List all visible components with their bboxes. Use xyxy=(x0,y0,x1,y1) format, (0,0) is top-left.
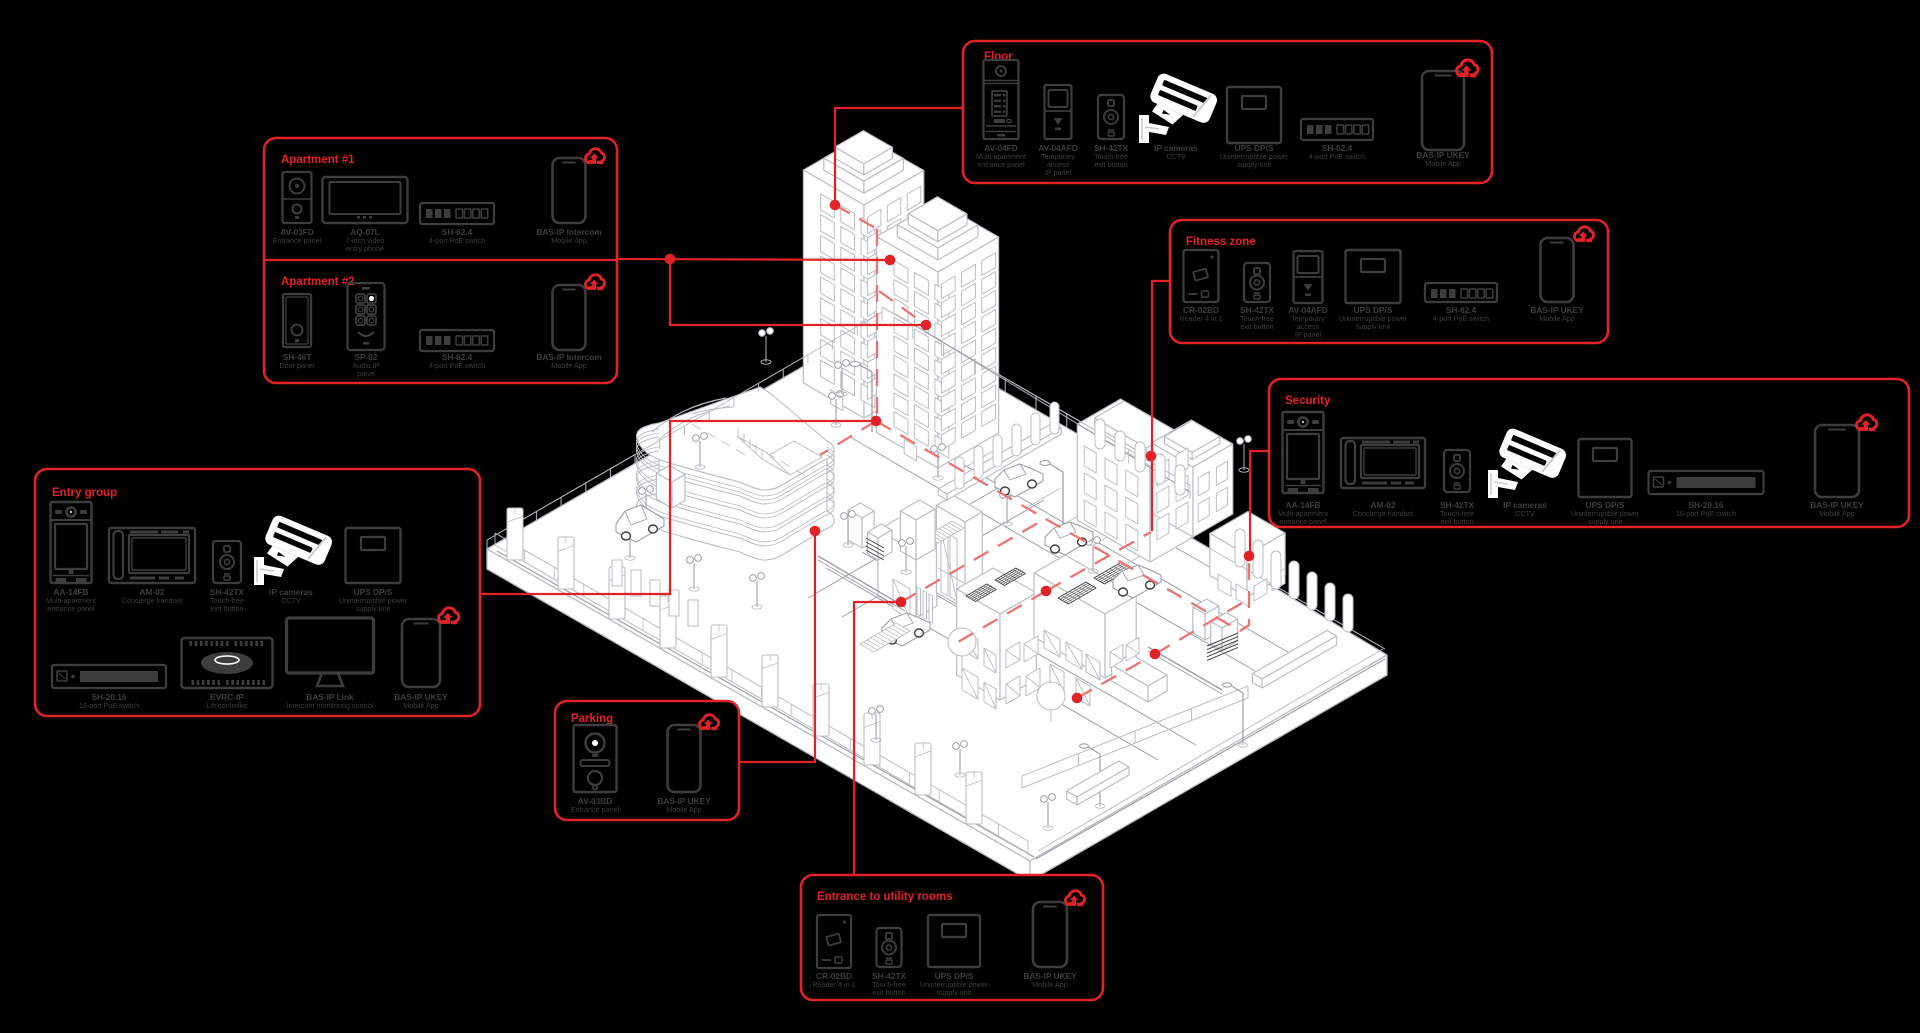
svg-text:Mobile App: Mobile App xyxy=(1032,980,1068,989)
svg-text:Entrance panel: Entrance panel xyxy=(571,805,620,814)
svg-text:entry phone: entry phone xyxy=(346,244,384,253)
svg-text:supply unit: supply unit xyxy=(1588,517,1622,526)
svg-text:Concierge handset: Concierge handset xyxy=(1353,509,1413,518)
svg-text:exit button: exit button xyxy=(872,988,905,997)
svg-text:Mobile App: Mobile App xyxy=(403,701,439,710)
svg-text:16-port PoE switch: 16-port PoE switch xyxy=(79,701,139,710)
svg-text:supply unit: supply unit xyxy=(1237,160,1271,169)
svg-text:Mobile App: Mobile App xyxy=(1425,159,1461,168)
svg-text:Apartment #1: Apartment #1 xyxy=(281,154,355,166)
svg-text:Mobile App: Mobile App xyxy=(551,361,587,370)
svg-text:Mobile App: Mobile App xyxy=(666,805,702,814)
svg-text:exit button: exit button xyxy=(210,604,243,613)
svg-text:16-port PoE switch: 16-port PoE switch xyxy=(1676,509,1736,518)
svg-text:IP panel: IP panel xyxy=(1295,330,1322,339)
svg-text:supply unit: supply unit xyxy=(356,604,390,613)
svg-text:panel: panel xyxy=(357,369,375,378)
svg-text:4-port PoE switch: 4-port PoE switch xyxy=(1433,314,1489,323)
svg-text:entrance panel: entrance panel xyxy=(977,160,1025,169)
svg-text:4-port PoE switch: 4-port PoE switch xyxy=(1309,152,1365,161)
svg-text:CCTV: CCTV xyxy=(1166,152,1186,161)
svg-text:exit button: exit button xyxy=(1440,517,1473,526)
svg-text:Entrance to utility rooms: Entrance to utility rooms xyxy=(817,891,952,903)
svg-text:Mobile App: Mobile App xyxy=(1819,509,1855,518)
svg-text:exit button: exit button xyxy=(1094,160,1127,169)
svg-text:CCTV: CCTV xyxy=(1515,509,1535,518)
svg-text:Entry group: Entry group xyxy=(52,487,117,499)
svg-text:supply unit: supply unit xyxy=(1356,322,1390,331)
svg-text:Floor: Floor xyxy=(984,51,1013,63)
svg-text:Mobile App: Mobile App xyxy=(1539,314,1575,323)
svg-text:Concierge handset: Concierge handset xyxy=(122,596,182,605)
svg-text:entrance panel: entrance panel xyxy=(1279,517,1327,526)
svg-text:entrance panel: entrance panel xyxy=(47,604,95,613)
svg-text:Parking: Parking xyxy=(571,713,613,725)
svg-text:Reader 4 in 1: Reader 4 in 1 xyxy=(1179,314,1222,323)
svg-text:Door panel: Door panel xyxy=(279,361,315,370)
svg-text:Reader 4 in 1: Reader 4 in 1 xyxy=(812,980,855,989)
svg-text:4-port PoE switch: 4-port PoE switch xyxy=(429,361,485,370)
svg-text:exit button: exit button xyxy=(1240,322,1273,331)
svg-text:Mobile App: Mobile App xyxy=(551,236,587,245)
svg-text:Intercom monitoring control: Intercom monitoring control xyxy=(286,701,373,710)
svg-text:IP panel: IP panel xyxy=(1045,168,1072,177)
svg-text:Lift controller: Lift controller xyxy=(206,701,248,710)
svg-text:Entrance panel: Entrance panel xyxy=(273,236,322,245)
svg-text:Security: Security xyxy=(1285,395,1331,407)
svg-text:CCTV: CCTV xyxy=(281,596,301,605)
svg-text:4-port PoE switch: 4-port PoE switch xyxy=(429,236,485,245)
svg-text:Apartment #2: Apartment #2 xyxy=(281,276,355,288)
svg-text:supply unit: supply unit xyxy=(937,988,971,997)
svg-text:Fitness zone: Fitness zone xyxy=(1186,236,1256,248)
